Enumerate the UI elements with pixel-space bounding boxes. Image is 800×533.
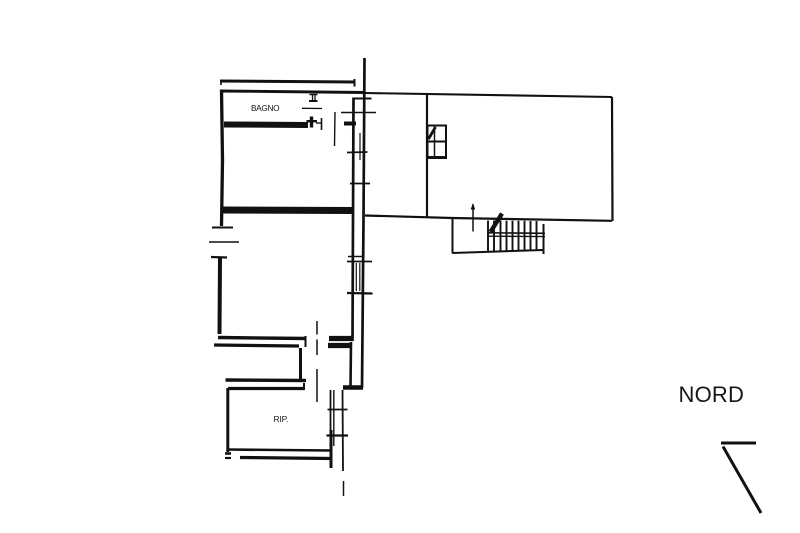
- svg-text:NORD: NORD: [679, 382, 745, 407]
- svg-text:RIP.: RIP.: [274, 414, 289, 424]
- svg-text:BAGNO: BAGNO: [251, 103, 280, 113]
